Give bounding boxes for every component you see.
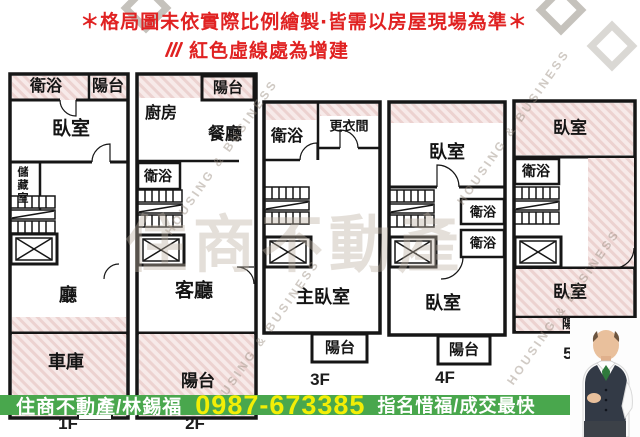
room-label-garage: 車庫 bbox=[48, 353, 84, 371]
red-hatch-icon bbox=[163, 42, 183, 57]
room-label-balcony: 陽台 bbox=[92, 79, 124, 95]
room-label-storage: 儲藏室 bbox=[16, 166, 27, 205]
room-label-bedroom-top: 臥室 bbox=[429, 143, 465, 161]
room-label-balcony: 陽台 bbox=[449, 343, 479, 358]
floor-label-4f: 4F bbox=[435, 368, 455, 388]
room-label-bedroom-bottom: 臥室 bbox=[425, 294, 461, 312]
room-label-bath1: 衛浴 bbox=[470, 206, 496, 219]
room-label-balcony: 陽台 bbox=[325, 341, 355, 356]
room-label-bedroom-bottom: 臥室 bbox=[553, 284, 587, 301]
floor-plan-4f-drawing bbox=[387, 100, 507, 367]
room-label-bedroom: 臥室 bbox=[52, 120, 90, 139]
floor-plan-1f: 衛浴 陽台 臥室 儲藏室 廳 車庫 bbox=[8, 72, 130, 420]
room-label-living: 客廳 bbox=[175, 282, 213, 301]
slogan-text: 指名惜福/成交最快 bbox=[377, 392, 535, 418]
floor-plan-5f: 臥室 衛浴 臥室 陽台 bbox=[512, 95, 637, 340]
floor-label-3f: 3F bbox=[310, 370, 330, 390]
room-label-master: 主臥室 bbox=[296, 288, 350, 306]
room-label-bath2: 衛浴 bbox=[470, 237, 496, 250]
legend-row: 紅色虛線處為增建 bbox=[0, 36, 512, 63]
room-label-bath: 衛浴 bbox=[30, 79, 62, 95]
room-label-bath: 衛浴 bbox=[271, 129, 303, 145]
agency-name: 住商不動產/林錫福 bbox=[16, 392, 182, 419]
agent-portrait-drawing bbox=[570, 318, 640, 437]
room-label-dining: 餐廳 bbox=[208, 126, 242, 143]
room-label-bath: 衛浴 bbox=[144, 169, 172, 183]
legend-text: 紅色虛線處為增建 bbox=[189, 36, 349, 63]
room-label-bath: 衛浴 bbox=[522, 164, 550, 178]
floor-plan-4f: 臥室 衛浴 衛浴 臥室 陽台 bbox=[387, 100, 507, 367]
room-label-kitchen: 廚房 bbox=[145, 106, 177, 122]
floor-plan-2f: 陽台 廚房 餐廳 衛浴 客廳 陽台 bbox=[135, 72, 258, 420]
phone-number: 0987-673385 bbox=[195, 390, 365, 421]
room-label-hall: 廳 bbox=[59, 286, 77, 304]
room-label-balcony-bottom: 陽台 bbox=[181, 373, 215, 390]
room-label-dressing: 更衣間 bbox=[329, 120, 368, 133]
floorplan-flyer: ＊格局圖未依實際比例繪製‧皆需以房屋現場為準＊ 紅色虛線處為增建 衛浴 bbox=[0, 0, 640, 437]
floor-plan-3f: 衛浴 更衣間 主臥室 陽台 bbox=[262, 100, 382, 365]
agent-photo bbox=[570, 318, 640, 437]
contact-banner: 住商不動產/林錫福 0987-673385 指名惜福/成交最快 bbox=[0, 395, 640, 415]
disclaimer-text: ＊格局圖未依實際比例繪製‧皆需以房屋現場為準＊ bbox=[0, 7, 608, 34]
room-label-balcony: 陽台 bbox=[213, 81, 243, 96]
room-label-bedroom-top: 臥室 bbox=[553, 120, 587, 137]
